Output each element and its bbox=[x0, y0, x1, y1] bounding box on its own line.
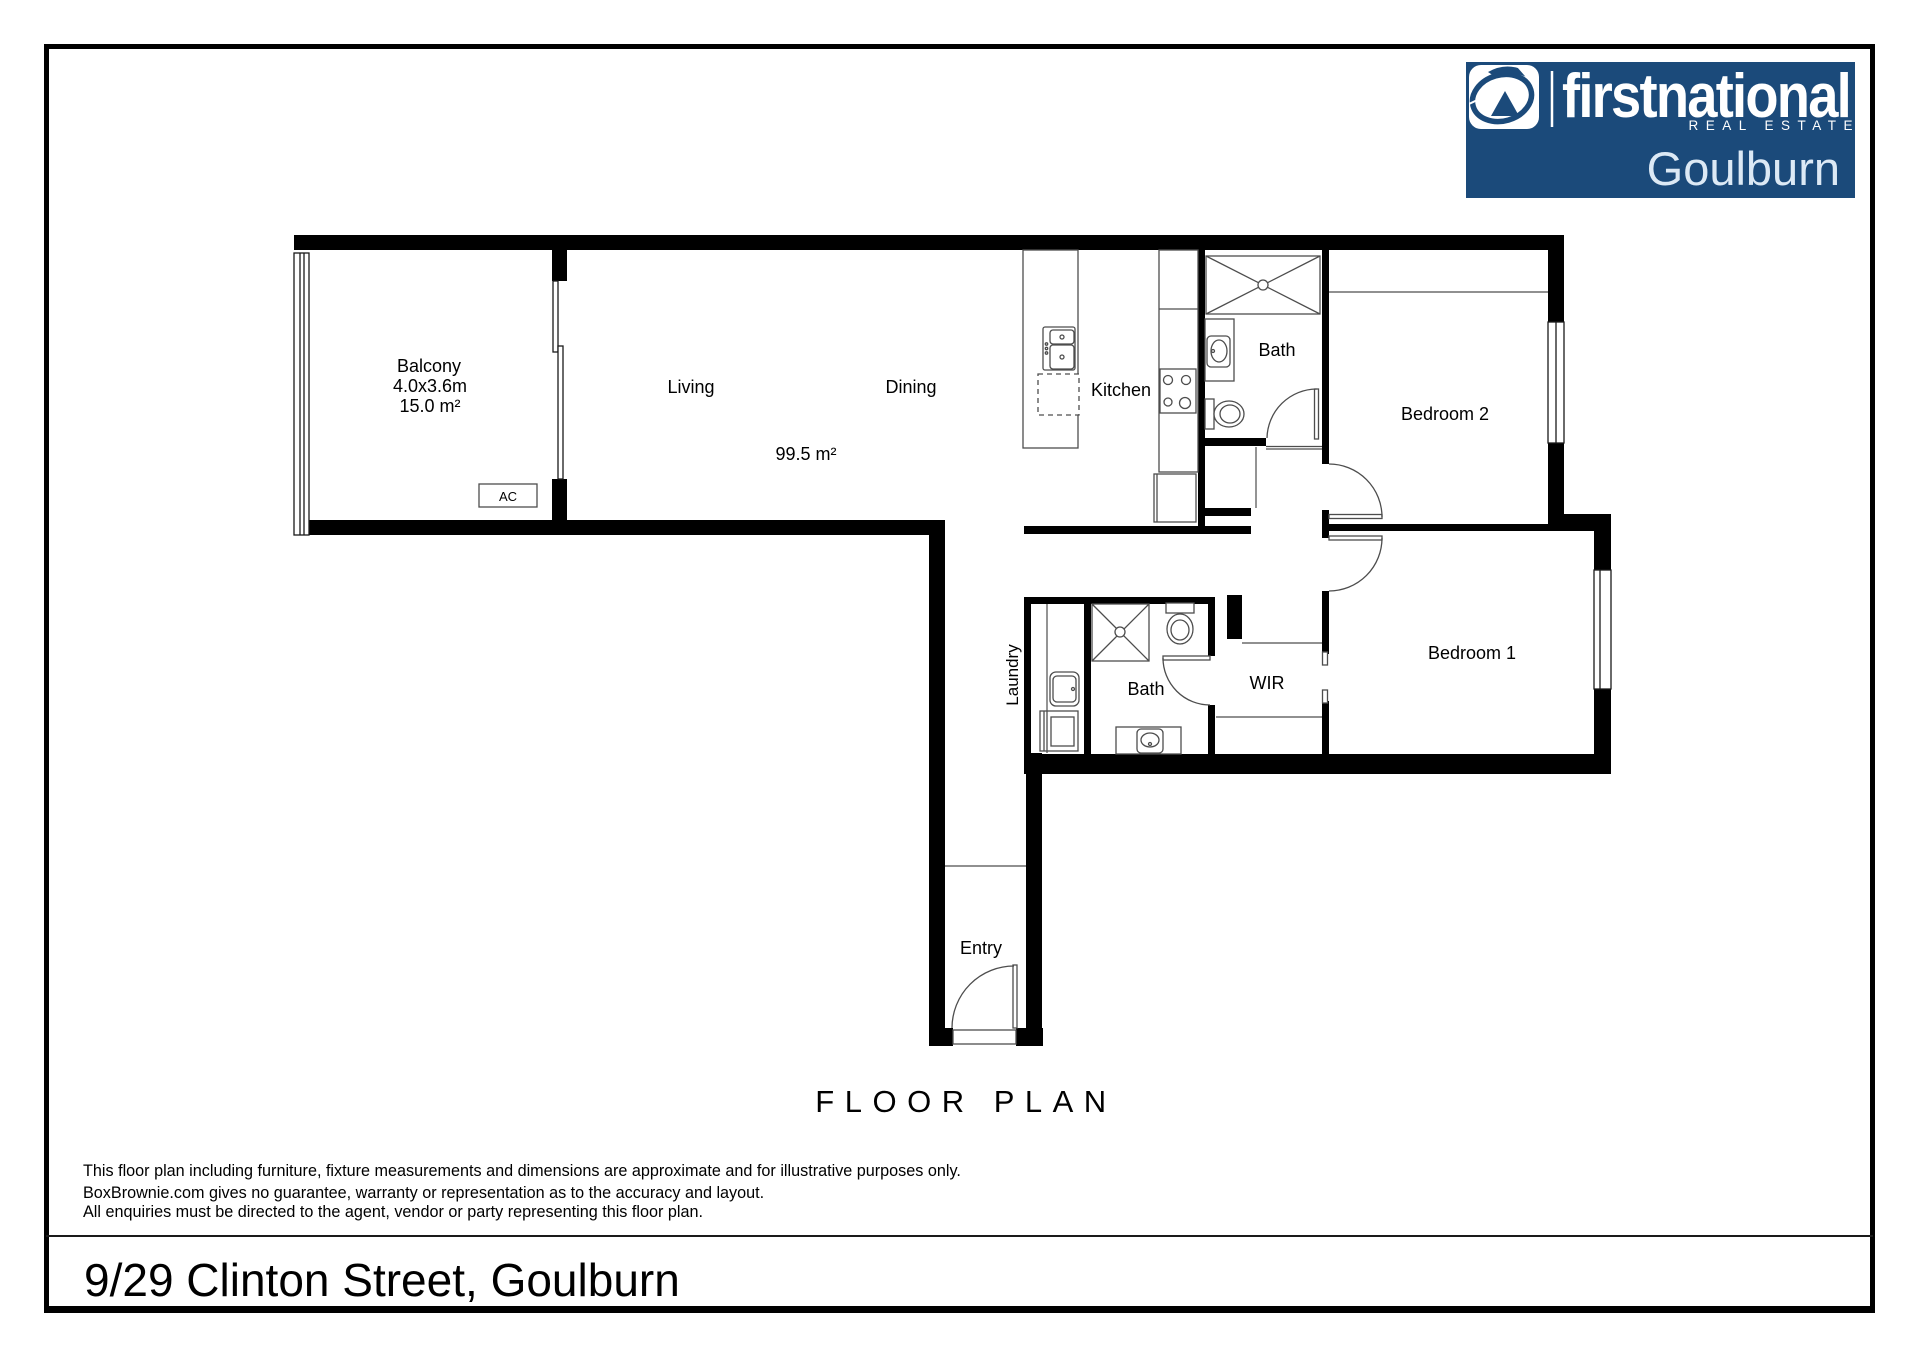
svg-text:Bath: Bath bbox=[1127, 679, 1164, 699]
svg-text:WIR: WIR bbox=[1250, 673, 1285, 693]
svg-text:Goulburn: Goulburn bbox=[1647, 142, 1840, 195]
svg-text:Balcony: Balcony bbox=[397, 356, 461, 376]
svg-text:99.5 m²: 99.5 m² bbox=[775, 444, 836, 464]
svg-text:Dining: Dining bbox=[885, 377, 936, 397]
svg-text:Bath: Bath bbox=[1258, 340, 1295, 360]
svg-text:REAL ESTATE: REAL ESTATE bbox=[1688, 118, 1860, 133]
svg-text:Kitchen: Kitchen bbox=[1091, 380, 1151, 400]
svg-text:This floor plan including furn: This floor plan including furniture, fix… bbox=[83, 1162, 961, 1180]
svg-text:All enquiries must be directed: All enquiries must be directed to the ag… bbox=[83, 1203, 703, 1221]
svg-text:Living: Living bbox=[667, 377, 714, 397]
svg-text:Bedroom 1: Bedroom 1 bbox=[1428, 643, 1516, 663]
svg-text:AC: AC bbox=[499, 489, 517, 504]
svg-text:4.0x3.6m: 4.0x3.6m bbox=[393, 376, 467, 396]
svg-text:Bedroom 2: Bedroom 2 bbox=[1401, 404, 1489, 424]
svg-text:FLOOR PLAN: FLOOR PLAN bbox=[815, 1084, 1116, 1119]
svg-text:15.0 m²: 15.0 m² bbox=[399, 396, 460, 416]
svg-text:9/29 Clinton Street, Goulburn: 9/29 Clinton Street, Goulburn bbox=[84, 1254, 680, 1306]
svg-text:Laundry: Laundry bbox=[1003, 644, 1022, 706]
svg-text:Entry: Entry bbox=[960, 938, 1002, 958]
svg-text:BoxBrownie.com gives no guaran: BoxBrownie.com gives no guarantee, warra… bbox=[83, 1184, 764, 1202]
